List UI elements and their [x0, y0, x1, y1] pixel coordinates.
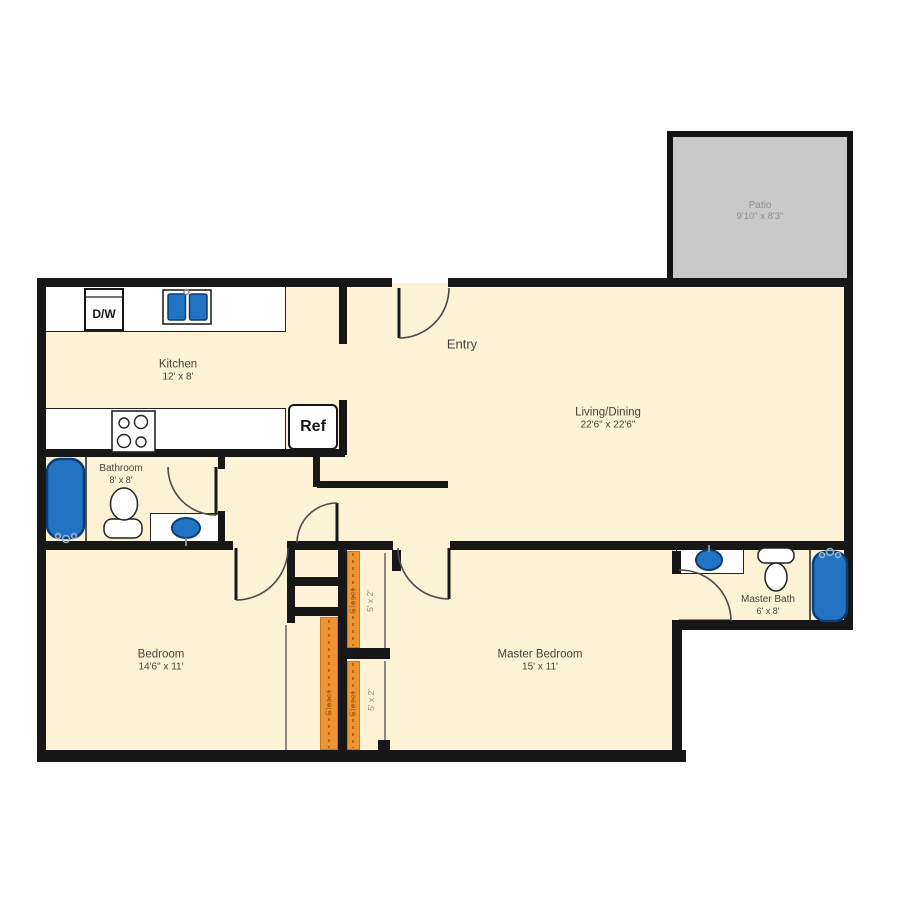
bathroom-vanity — [150, 513, 219, 544]
floor-plan: Patio 9'10" x 8'3" D/W Ref — [0, 0, 900, 900]
hall-closet-lower-dims: 5' x 2' — [366, 689, 376, 711]
wall-mb-door-jamb — [392, 550, 401, 571]
entry-label: Entry — [447, 337, 477, 352]
wall-top-left-of-entry — [37, 278, 392, 287]
bedroom-label: Bedroom 14'6" x 11' — [138, 649, 185, 674]
wall-left — [37, 278, 46, 762]
kitchen-name: Kitchen — [159, 359, 197, 372]
master-bedroom-name: Master Bedroom — [497, 649, 582, 662]
wall-hall-north — [317, 481, 448, 488]
living-dining-name: Living/Dining — [575, 407, 641, 420]
wall-right — [844, 278, 853, 630]
master-bath-vanity — [676, 548, 744, 574]
patio-label: Patio 9'10" x 8'3" — [737, 200, 784, 222]
bathroom-name: Bathroom — [99, 463, 142, 475]
wall-kitchen-living-upper — [339, 287, 347, 344]
wall-linen-west — [287, 541, 295, 623]
master-bath-name: Master Bath — [741, 594, 795, 606]
wall-linen-shelf-2 — [295, 607, 340, 616]
bedroom-closet-label: Closet — [325, 690, 334, 716]
wall-linen-shelf-1 — [295, 577, 340, 586]
wall-kitchen-south — [37, 449, 345, 457]
wall-top-right-of-entry — [448, 278, 853, 287]
wall-bathroom-east-lower — [218, 511, 225, 545]
living-dining-dims: 22'6" x 22'6" — [575, 420, 641, 432]
kitchen-dims: 12' x 8' — [159, 372, 197, 384]
refrigerator: Ref — [288, 404, 338, 450]
bedroom-dims: 14'6" x 11' — [138, 662, 185, 674]
master-bath-label: Master Bath 6' x 8' — [741, 594, 795, 616]
patio-name: Patio — [737, 200, 784, 212]
hall-closet-upper-dims: 5' x 2' — [365, 590, 375, 612]
refrigerator-label: Ref — [300, 418, 326, 436]
wall-master-bath-west-upper — [672, 551, 681, 574]
patio-dims: 9'10" x 8'3" — [737, 212, 784, 223]
dishwasher-label: D/W — [92, 307, 115, 321]
wall-closet-jamb-bottom — [378, 740, 390, 750]
bathroom-dims: 8' x 8' — [99, 475, 142, 485]
master-bath-dims: 6' x 8' — [741, 606, 795, 616]
master-bedroom-label: Master Bedroom 15' x 11' — [497, 649, 582, 674]
wall-master-bath-bottom — [672, 620, 853, 630]
wall-divider-west — [37, 541, 233, 550]
kitchen-counter-bottom — [46, 408, 286, 450]
hall-closet-lower-label: Closet — [349, 691, 358, 717]
wall-divider-east — [450, 541, 853, 550]
bathroom-label: Bathroom 8' x 8' — [99, 463, 142, 485]
wall-master-bedroom-east — [672, 620, 682, 762]
patio-area: Patio 9'10" x 8'3" — [667, 131, 853, 286]
master-bedroom-dims: 15' x 11' — [497, 662, 582, 674]
kitchen-counter-top — [46, 287, 286, 332]
dishwasher: D/W — [84, 288, 124, 331]
wall-bathroom-east-nub — [218, 457, 225, 469]
wall-bottom — [37, 750, 686, 762]
wall-closet-divider — [342, 648, 390, 659]
bedroom-closet-rod — [320, 617, 338, 750]
wall-kitchen-living-lower — [339, 400, 347, 455]
bedroom-name: Bedroom — [138, 649, 185, 662]
living-dining-label: Living/Dining 22'6" x 22'6" — [575, 407, 641, 432]
hall-closet-upper-label: Closet — [349, 588, 358, 614]
kitchen-label: Kitchen 12' x 8' — [159, 359, 197, 384]
